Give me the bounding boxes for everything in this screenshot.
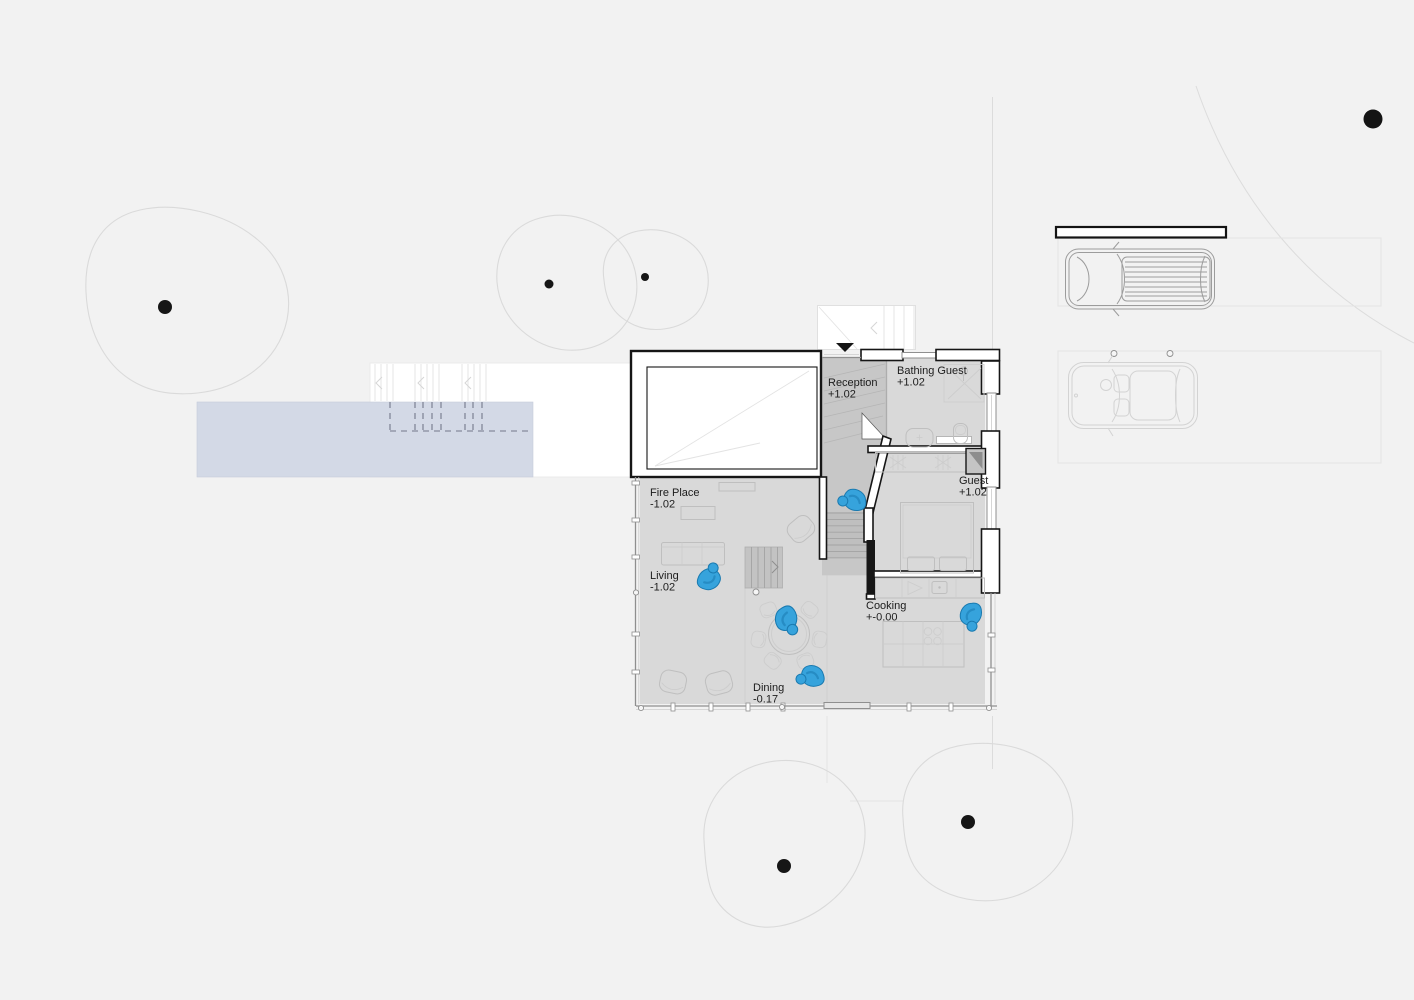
secondary-stair (745, 547, 783, 595)
car-hatchback-icon (1069, 355, 1198, 436)
retaining-wall (1056, 227, 1226, 238)
room-label-living: Living-1.02 (650, 570, 679, 594)
tree (497, 215, 637, 350)
garage (631, 351, 821, 477)
tree (704, 761, 865, 928)
tree (86, 207, 289, 393)
exterior-entry-stair (818, 306, 916, 350)
parking-area (1056, 227, 1381, 463)
main-stair (827, 512, 869, 559)
shaft (966, 449, 986, 475)
parking-stall (1058, 351, 1381, 463)
tree (603, 230, 708, 330)
floor-plan-page: Reception+1.02 Bathing Guest+1.02 Guest+… (0, 0, 1414, 1000)
floor-plan-canvas: Reception+1.02 Bathing Guest+1.02 Guest+… (0, 0, 1414, 1000)
wall-guest-cooking (874, 571, 985, 578)
car-suv-icon (1066, 242, 1215, 316)
swimming-pool (197, 402, 533, 477)
west-facade (632, 477, 640, 706)
parking-stall (1058, 238, 1381, 306)
wall (820, 477, 827, 559)
site-marker-dot (1364, 110, 1383, 129)
sliding-door (824, 703, 870, 709)
wall-dining-cooking (867, 540, 876, 594)
house-plan: Reception+1.02 Bathing Guest+1.02 Guest+… (631, 343, 1000, 711)
room-label-guest: Guest+1.02 (959, 475, 988, 499)
tree (903, 743, 1073, 900)
